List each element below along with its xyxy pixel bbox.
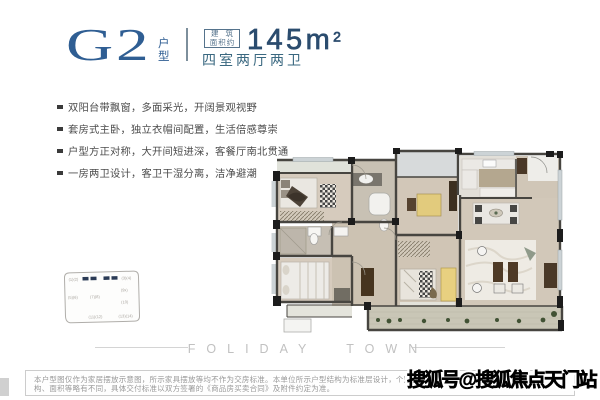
svg-text:(10): (10)	[121, 299, 129, 304]
svg-text:(1)(2): (1)(2)	[68, 277, 79, 282]
svg-text:(7)(8): (7)(8)	[90, 294, 101, 299]
svg-text:(3)(4): (3)(4)	[121, 275, 132, 280]
svg-text:(5)(6): (5)(6)	[68, 295, 79, 300]
svg-text:(9x): (9x)	[121, 287, 129, 292]
svg-text:(13)(14): (13)(14)	[118, 313, 133, 318]
svg-text:搜狐号@搜狐焦点天门站: 搜狐号@搜狐焦点天门站	[407, 368, 598, 391]
svg-text:(11)(12): (11)(12)	[88, 314, 103, 319]
